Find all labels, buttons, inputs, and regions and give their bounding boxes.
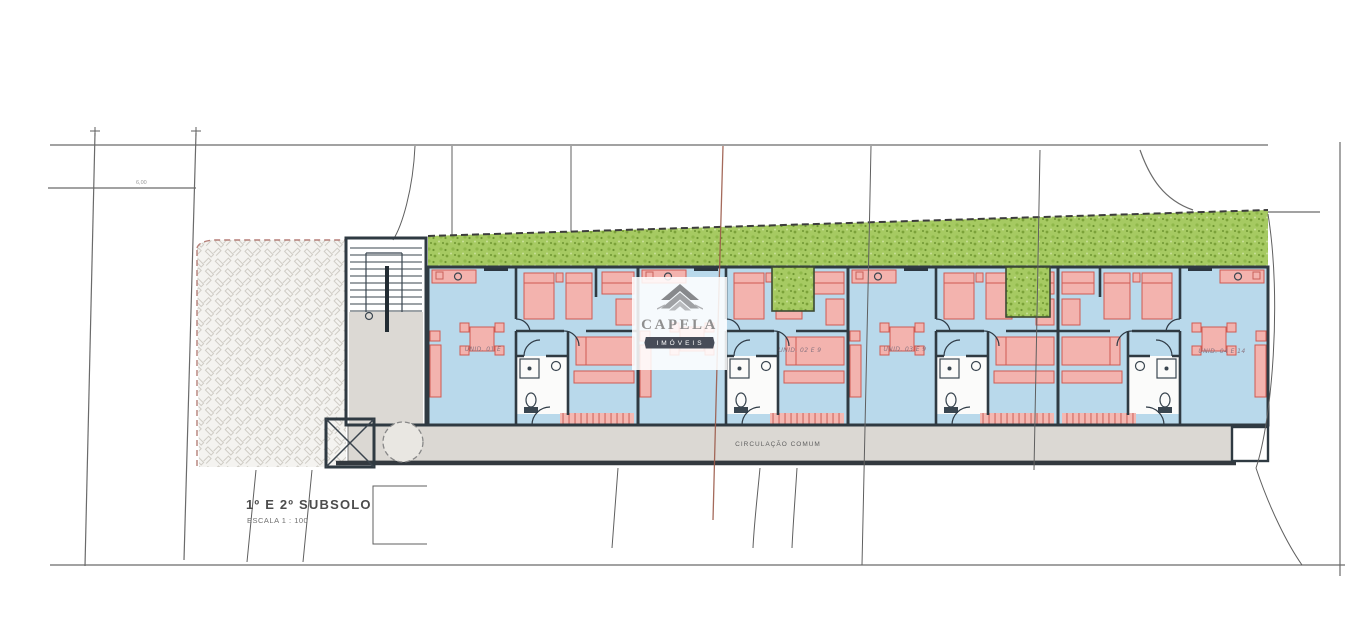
green-recess-2 <box>1006 267 1050 317</box>
unit-4-label: UNID. 04 E 14 <box>1198 348 1245 355</box>
dimension-note: 6,00 <box>136 180 147 186</box>
unit-2-label: UNID. 02 E 9 <box>779 347 822 354</box>
unit-4 <box>1058 267 1268 425</box>
floorplan-page: CIRCULAÇÃO COMUM UNID. 01 E UNID. 02 E 9… <box>0 0 1358 640</box>
corridor-label: CIRCULAÇÃO COMUM <box>735 439 821 448</box>
plan-title: 1º E 2º SUBSOLO <box>246 497 372 512</box>
turning-circle <box>383 422 423 462</box>
title-block: 1º E 2º SUBSOLO ESCALA 1 : 100 <box>246 497 372 525</box>
unit-3-label: UNID. 03 E 9 <box>884 346 927 353</box>
landscaped-strip <box>428 210 1268 273</box>
brand-name: CAPELA <box>641 317 718 334</box>
plan-scale: ESCALA 1 : 100 <box>247 516 308 525</box>
watermark: CAPELA IMÓVEIS <box>632 277 727 370</box>
green-recess-1 <box>772 267 814 311</box>
unit-1 <box>428 267 638 425</box>
brand-tagline: IMÓVEIS <box>644 337 714 349</box>
paved-courtyard <box>197 240 346 467</box>
capela-logo-icon <box>657 284 703 314</box>
unit-1-label: UNID. 01 E <box>465 346 501 353</box>
